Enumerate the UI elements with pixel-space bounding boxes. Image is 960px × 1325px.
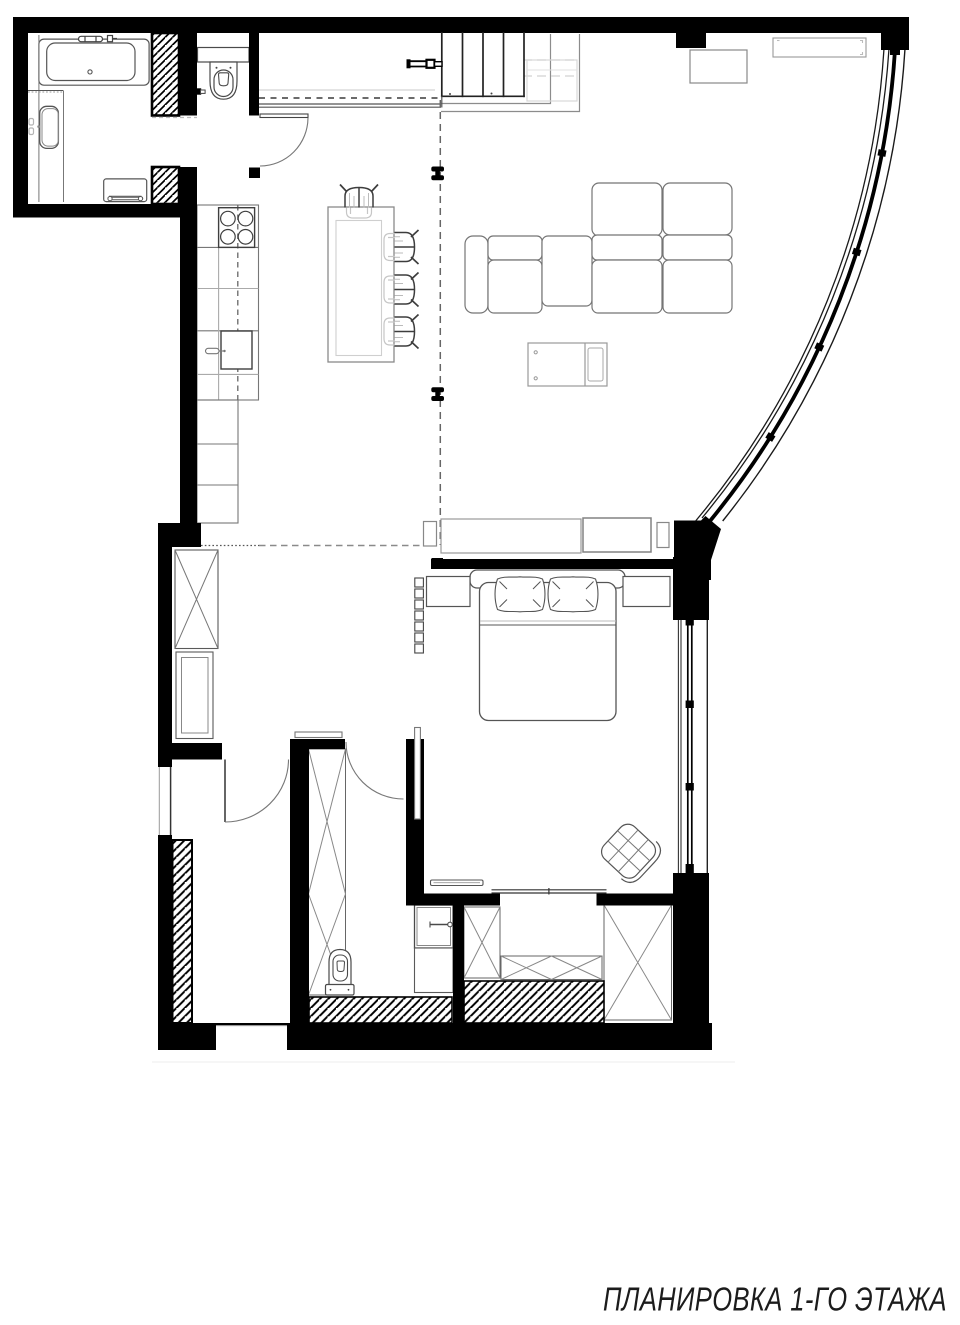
svg-text:ПЛАНИРОВКА 1-ГО ЭТАЖА: ПЛАНИРОВКА 1-ГО ЭТАЖА [603, 1282, 947, 1319]
